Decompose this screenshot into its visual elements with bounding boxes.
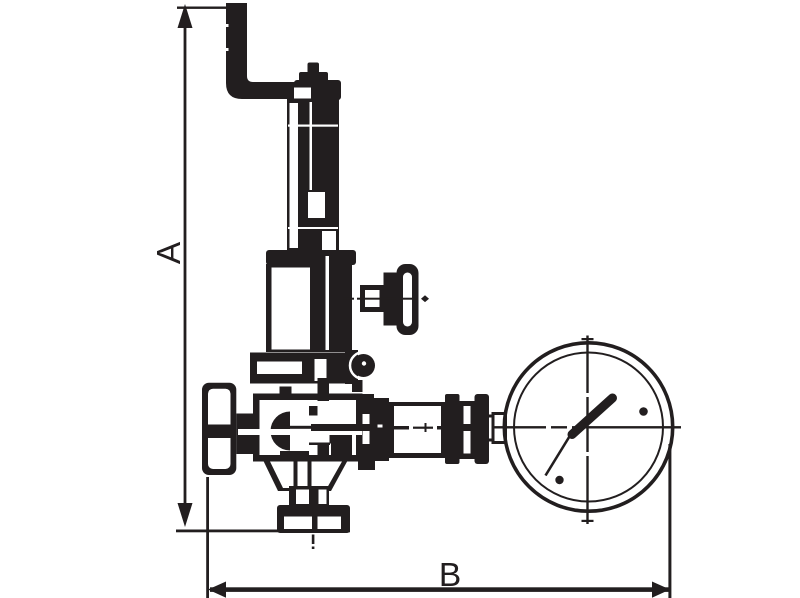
svg-text:B: B: [439, 557, 461, 594]
svg-text:A: A: [151, 241, 188, 264]
